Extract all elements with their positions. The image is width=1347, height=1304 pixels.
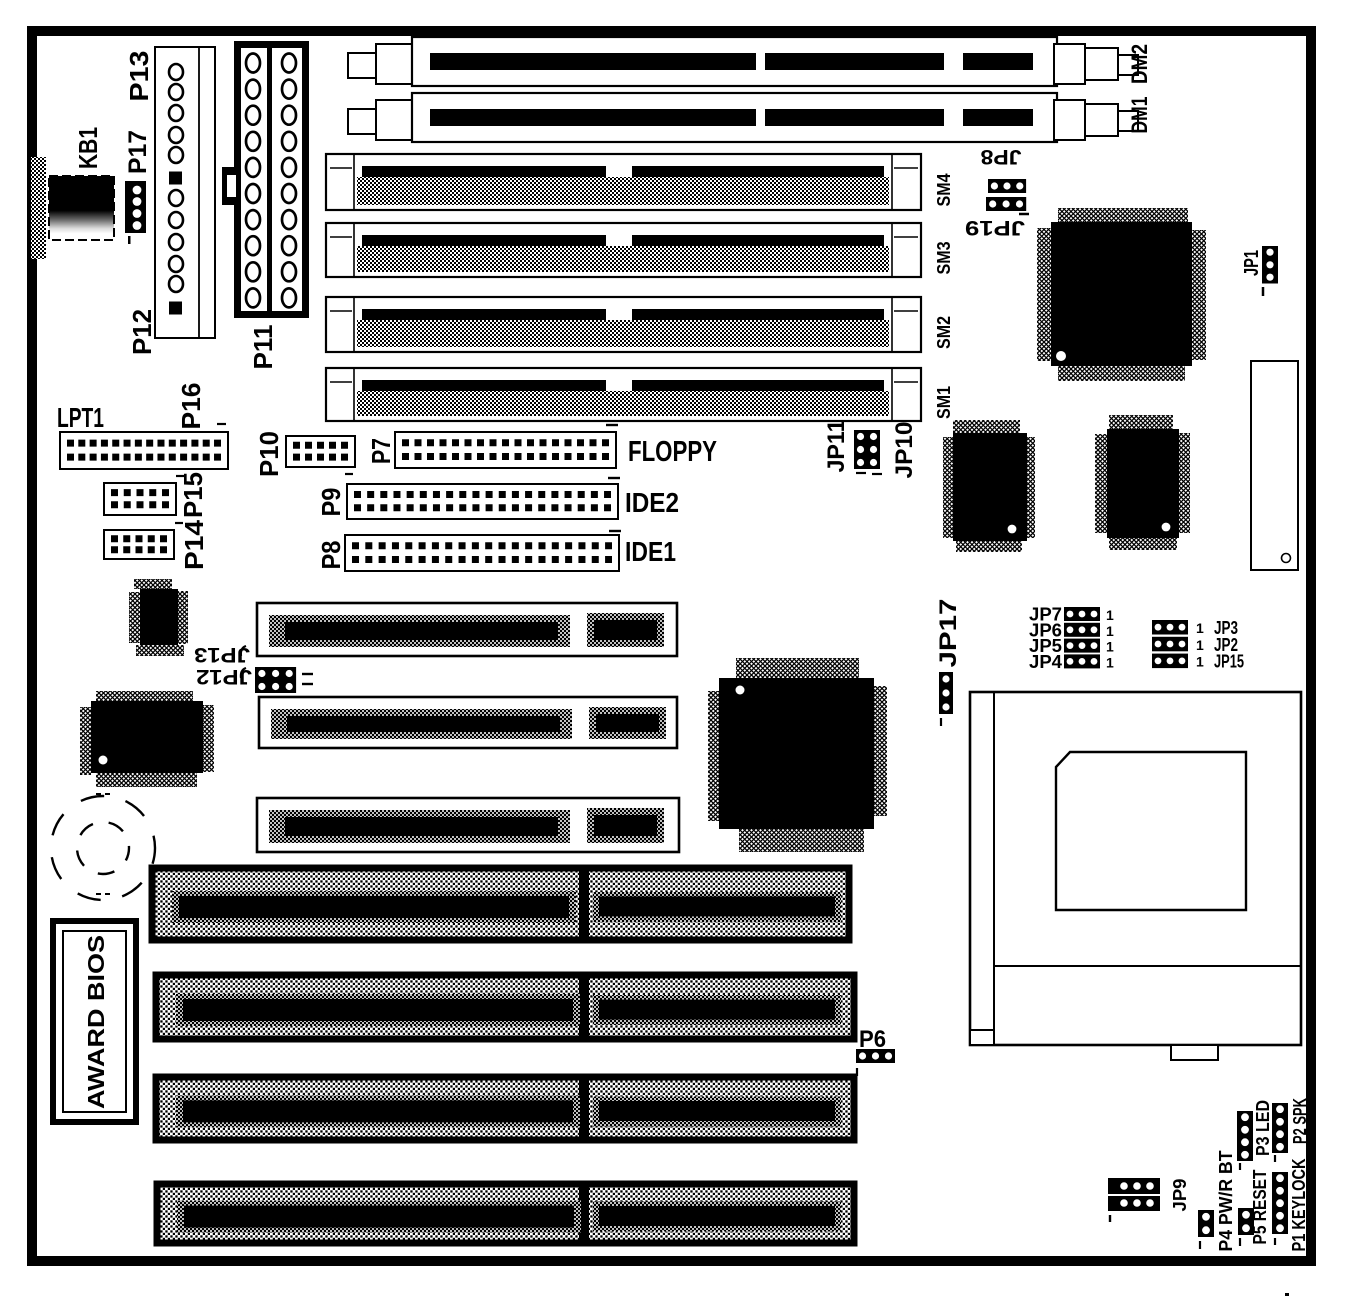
- svg-text:SM1: SM1: [934, 386, 954, 419]
- svg-text:P3 LED: P3 LED: [1253, 1100, 1273, 1156]
- svg-text:P14: P14: [179, 519, 209, 570]
- svg-text:P13: P13: [124, 51, 154, 102]
- svg-text:IDE1: IDE1: [625, 536, 676, 567]
- svg-text:FLOPPY: FLOPPY: [628, 436, 717, 468]
- svg-text:JP8: JP8: [980, 145, 1021, 168]
- svg-text:P10: P10: [254, 431, 284, 477]
- svg-text:1: 1: [1106, 623, 1114, 639]
- svg-text:DM1: DM1: [1127, 97, 1152, 134]
- svg-text:P12: P12: [127, 309, 157, 355]
- svg-text:P5 RESET: P5 RESET: [1250, 1169, 1270, 1244]
- svg-text:JP19: JP19: [965, 216, 1025, 239]
- svg-text:DM2: DM2: [1127, 44, 1152, 84]
- svg-text:LPT1: LPT1: [57, 402, 104, 433]
- svg-text:P2 SPK: P2 SPK: [1290, 1098, 1310, 1144]
- svg-text:P4 PW/R BT: P4 PW/R BT: [1216, 1151, 1236, 1252]
- svg-text:P6: P6: [859, 1026, 886, 1053]
- svg-text:SM3: SM3: [934, 242, 954, 275]
- svg-text:P11: P11: [248, 325, 278, 370]
- svg-text:SM4: SM4: [934, 174, 954, 207]
- svg-text:JP4: JP4: [1029, 652, 1062, 672]
- svg-text:P8: P8: [316, 541, 346, 570]
- svg-text:1: 1: [1106, 639, 1114, 655]
- svg-text:JP11: JP11: [823, 420, 850, 473]
- svg-text:JP15: JP15: [1214, 652, 1244, 672]
- svg-text:JP1: JP1: [1241, 250, 1263, 276]
- svg-text:JP10: JP10: [891, 422, 918, 479]
- svg-text:AWARD BIOS: AWARD BIOS: [83, 935, 109, 1109]
- svg-text:IDE2: IDE2: [625, 487, 679, 518]
- svg-text:KB1: KB1: [73, 127, 103, 169]
- svg-text:SM2: SM2: [934, 316, 954, 349]
- svg-text:P7: P7: [366, 438, 396, 464]
- svg-text:1: 1: [1106, 607, 1114, 623]
- svg-text:P16: P16: [176, 383, 206, 430]
- svg-text:JP17: JP17: [935, 599, 962, 668]
- svg-text:JP9: JP9: [1170, 1179, 1190, 1212]
- svg-text:1: 1: [1196, 654, 1204, 670]
- svg-text:P17: P17: [124, 130, 152, 174]
- svg-text:P1 KEYLOCK: P1 KEYLOCK: [1289, 1159, 1309, 1252]
- svg-text:1: 1: [1196, 620, 1204, 636]
- svg-text:1: 1: [1196, 637, 1204, 653]
- svg-text:P15: P15: [178, 472, 208, 518]
- svg-text:1: 1: [1106, 654, 1114, 670]
- svg-text:P9: P9: [316, 488, 346, 517]
